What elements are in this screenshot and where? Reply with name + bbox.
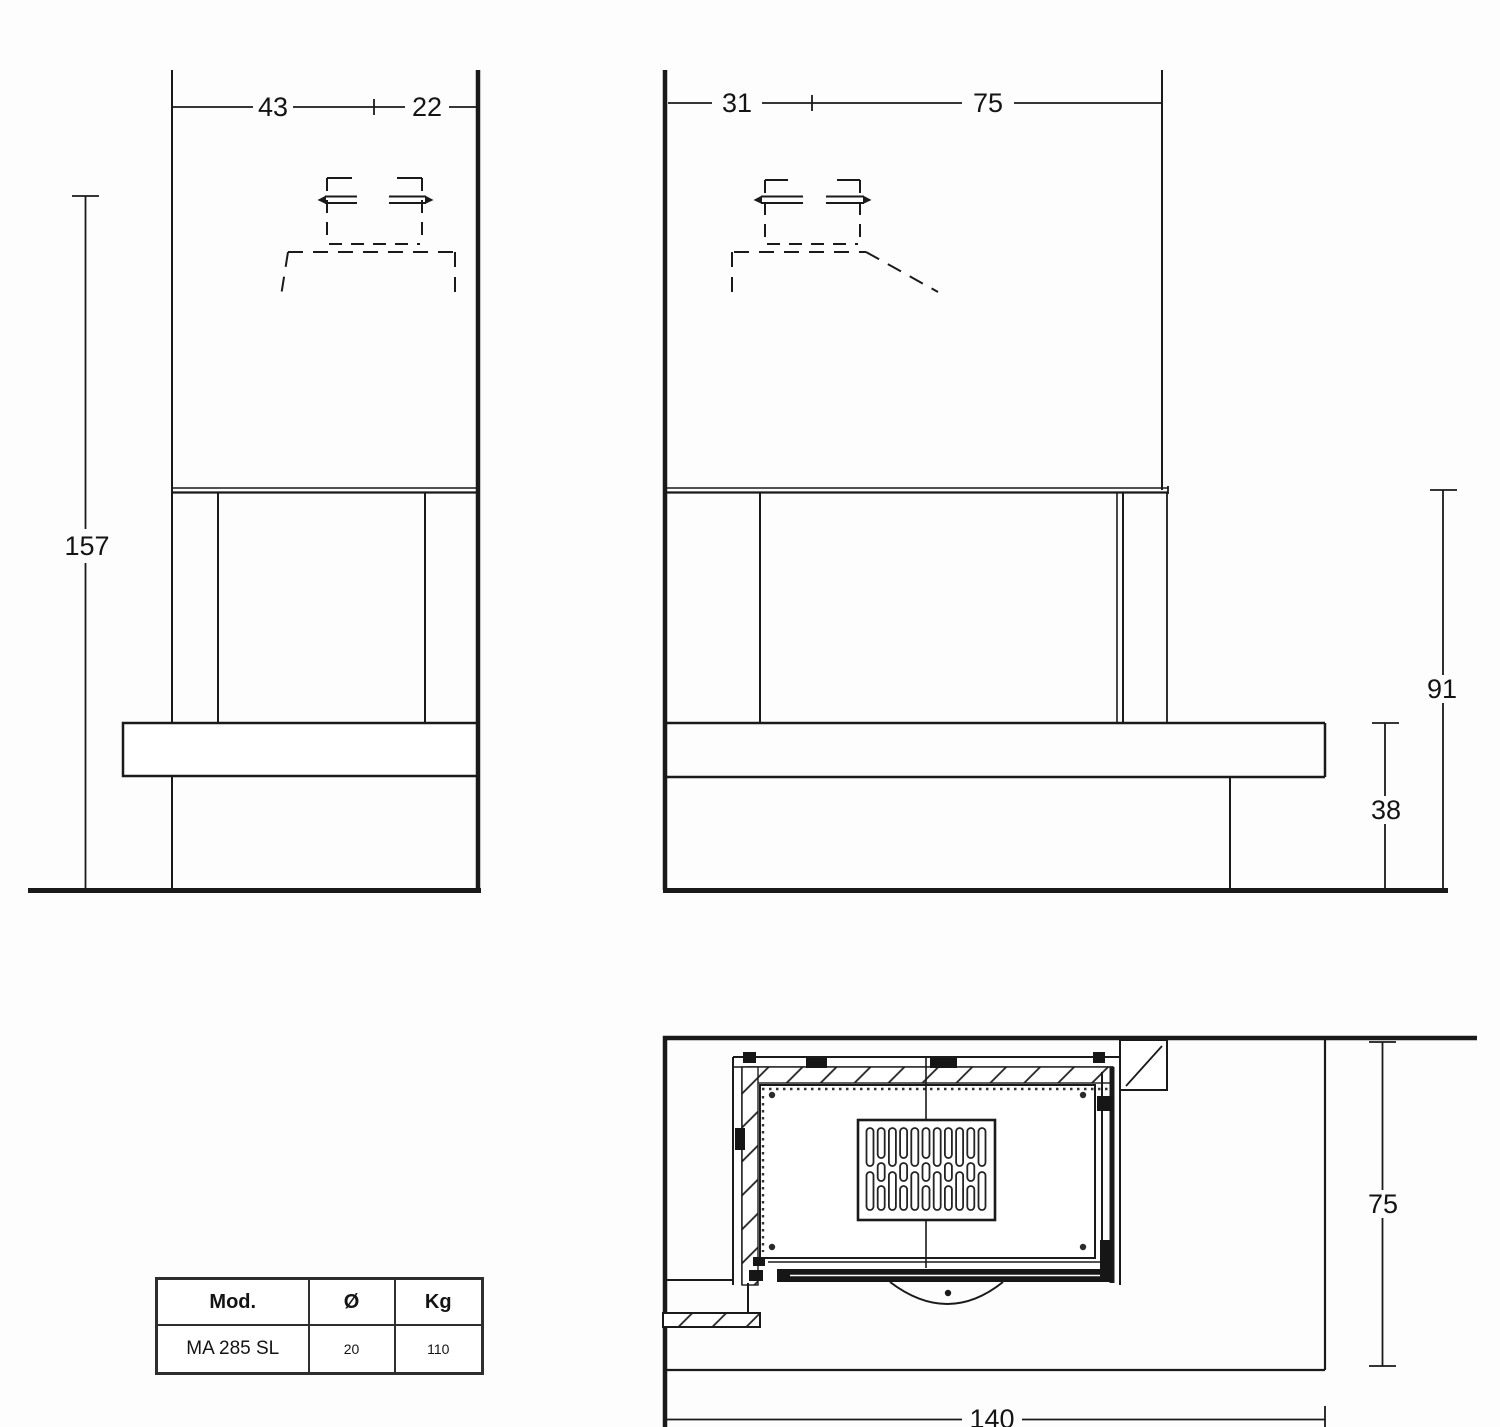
front-hood-profile-dashed xyxy=(281,252,455,296)
side-dim-opening-height: 91 xyxy=(1427,674,1457,704)
spec-header-diameter: Ø xyxy=(309,1279,395,1326)
front-dim-width-side: 22 xyxy=(412,92,442,122)
side-dim-bench-height: 38 xyxy=(1371,795,1401,825)
side-dim-depth-back: 75 xyxy=(973,88,1003,118)
front-flue-collar xyxy=(318,196,434,205)
grille-slots xyxy=(867,1128,986,1210)
plan-right-wall-return xyxy=(1120,1040,1167,1090)
spec-header-weight: Kg xyxy=(395,1279,483,1326)
side-hood-profile-dashed xyxy=(732,252,938,296)
plan-insert-left-frame xyxy=(733,1057,758,1285)
plan-left-wall-return xyxy=(663,1280,760,1327)
spec-value-model: MA 285 SL xyxy=(157,1325,309,1374)
spec-value-weight: 110 xyxy=(395,1325,483,1374)
plan-insert-front-frame xyxy=(749,1257,1113,1282)
spec-header-model: Mod. xyxy=(157,1279,309,1326)
side-flue-spigot-dashed xyxy=(765,180,860,244)
door-arc-pivot xyxy=(945,1290,951,1296)
plan-dim-width: 140 xyxy=(969,1404,1014,1427)
front-flue-spigot-dashed xyxy=(327,178,422,244)
side-view: 31 75 xyxy=(663,70,1457,891)
side-dim-depth-front: 31 xyxy=(722,88,752,118)
front-dim-width-inner: 43 xyxy=(258,92,288,122)
spec-table: Mod. Ø Kg MA 285 SL 20 110 xyxy=(155,1277,484,1375)
front-dim-height: 157 xyxy=(64,531,109,561)
spec-value-diameter: 20 xyxy=(309,1325,395,1374)
front-view: 43 22 xyxy=(28,70,481,891)
side-flue-collar xyxy=(754,196,872,205)
plan-dim-depth: 75 xyxy=(1368,1189,1398,1219)
side-bench xyxy=(665,723,1325,777)
technical-drawing-sheet: 43 22 xyxy=(0,0,1500,1427)
front-mantel-shelf xyxy=(123,723,477,776)
fireplace-dimension-drawing: 43 22 xyxy=(0,0,1500,1427)
top-view: 75 140 xyxy=(663,1036,1477,1427)
